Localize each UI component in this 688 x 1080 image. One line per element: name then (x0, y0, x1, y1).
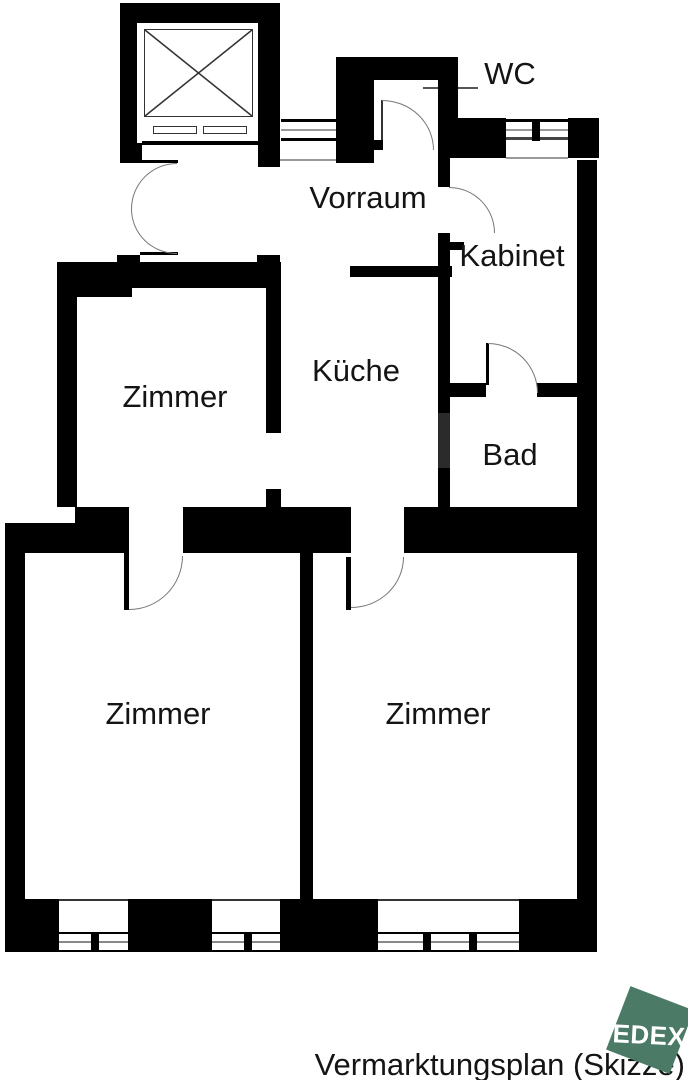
room-label-bad: Bad (482, 437, 537, 473)
plan-caption: Vermarktungsplan (Skizze) (0, 1047, 685, 1080)
wall-segment (336, 57, 374, 163)
line-segment (378, 950, 520, 952)
line-segment (378, 932, 520, 934)
line-segment (278, 159, 340, 161)
line-segment (281, 119, 340, 122)
symbol-box (203, 126, 247, 134)
door-arc (382, 100, 434, 150)
wall-segment (72, 282, 132, 297)
door-arc (351, 557, 404, 608)
door-arc (488, 343, 538, 393)
plan-canvas (0, 0, 688, 1080)
wall-segment (438, 57, 458, 120)
line-segment (378, 941, 520, 943)
wall-segment (519, 899, 597, 952)
wall-segment (244, 932, 252, 952)
room-label-wc: WC (484, 56, 536, 92)
wall-segment (537, 383, 577, 397)
floor-plan: WC Vorraum Kabinet Küche Zimmer Bad Zimm… (0, 0, 688, 1080)
line-segment (59, 899, 128, 901)
door-arc (449, 187, 495, 233)
room-label-kueche: Küche (312, 353, 400, 389)
line-segment (212, 899, 280, 901)
line-segment (281, 138, 340, 141)
door-arc (129, 556, 183, 610)
room-label-zimmer-bottom-left: Zimmer (105, 696, 210, 732)
wall-segment (532, 119, 540, 141)
wall-segment (5, 523, 25, 952)
wall-segment (438, 150, 450, 187)
wall-segment (577, 160, 597, 952)
wall-segment (438, 413, 450, 468)
wall-segment (300, 553, 313, 899)
wall-segment (75, 507, 129, 553)
room-label-kabinet: Kabinet (459, 238, 564, 274)
wall-segment (91, 932, 99, 952)
wall-segment (120, 3, 277, 23)
wall-segment (447, 383, 486, 397)
door-arc (131, 163, 177, 209)
wall-segment (128, 899, 212, 952)
room-label-zimmer-bottom-right: Zimmer (385, 696, 490, 732)
room-label-vorraum: Vorraum (309, 180, 426, 216)
door-arc (131, 209, 177, 254)
line-segment (142, 141, 258, 145)
line-segment (506, 157, 568, 159)
wall-segment (120, 3, 137, 163)
wall-segment (469, 932, 477, 952)
wall-segment (258, 3, 280, 167)
elevator-shaft-icon (144, 29, 253, 117)
wall-segment (120, 143, 142, 163)
wall-segment (404, 507, 597, 553)
logo-text: EDEX (602, 1018, 688, 1054)
symbol-box (153, 126, 197, 134)
wall-segment (57, 262, 77, 507)
wall-segment (280, 899, 378, 952)
wall-segment (5, 899, 59, 952)
line-segment (378, 899, 520, 901)
wall-segment (438, 468, 450, 508)
wall-segment (568, 118, 599, 158)
wall-segment (266, 288, 281, 433)
wall-segment (423, 932, 431, 952)
wall-segment (183, 507, 351, 553)
room-label-zimmer-top: Zimmer (122, 379, 227, 415)
line-segment (281, 129, 340, 131)
wall-segment (266, 489, 281, 508)
wall-segment (350, 266, 452, 277)
